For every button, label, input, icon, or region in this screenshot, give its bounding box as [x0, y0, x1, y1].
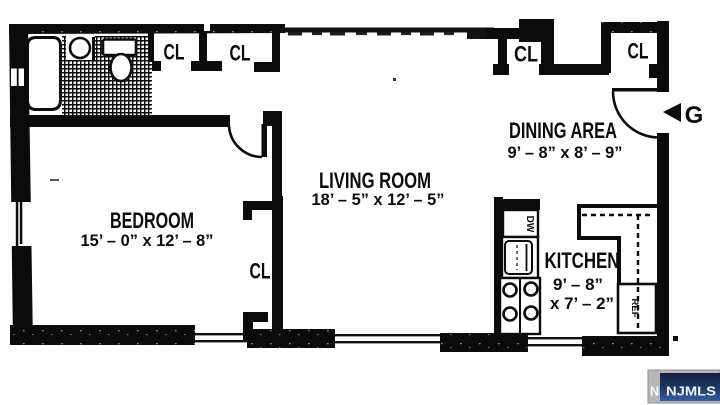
- svg-text:18’ – 5” x 12’ – 5”: 18’ – 5” x 12’ – 5”: [312, 191, 445, 209]
- svg-text:N: N: [650, 385, 659, 399]
- svg-text:x 7’ – 2”: x 7’ – 2”: [550, 295, 614, 313]
- svg-text:9’ – 8” x 8’ – 9”: 9’ – 8” x 8’ – 9”: [508, 144, 623, 162]
- svg-text:CL: CL: [230, 41, 251, 66]
- svg-text:BEDROOM: BEDROOM: [110, 208, 194, 233]
- svg-text:CL: CL: [628, 39, 649, 64]
- svg-text:CL: CL: [250, 259, 271, 284]
- svg-text:DW: DW: [524, 216, 535, 233]
- svg-text:CL: CL: [164, 40, 185, 65]
- svg-text:LIVING ROOM: LIVING ROOM: [319, 168, 431, 193]
- svg-text:DINING AREA: DINING AREA: [509, 118, 617, 143]
- svg-text:15’ – 0” x 12’ – 8”: 15’ – 0” x 12’ – 8”: [81, 232, 214, 250]
- svg-text:G: G: [685, 102, 704, 129]
- svg-text:NJMLS: NJMLS: [666, 384, 717, 399]
- svg-text:CL: CL: [514, 42, 538, 67]
- svg-text:KITCHEN: KITCHEN: [545, 248, 620, 273]
- svg-text:9’ – 8”: 9’ – 8”: [553, 276, 603, 294]
